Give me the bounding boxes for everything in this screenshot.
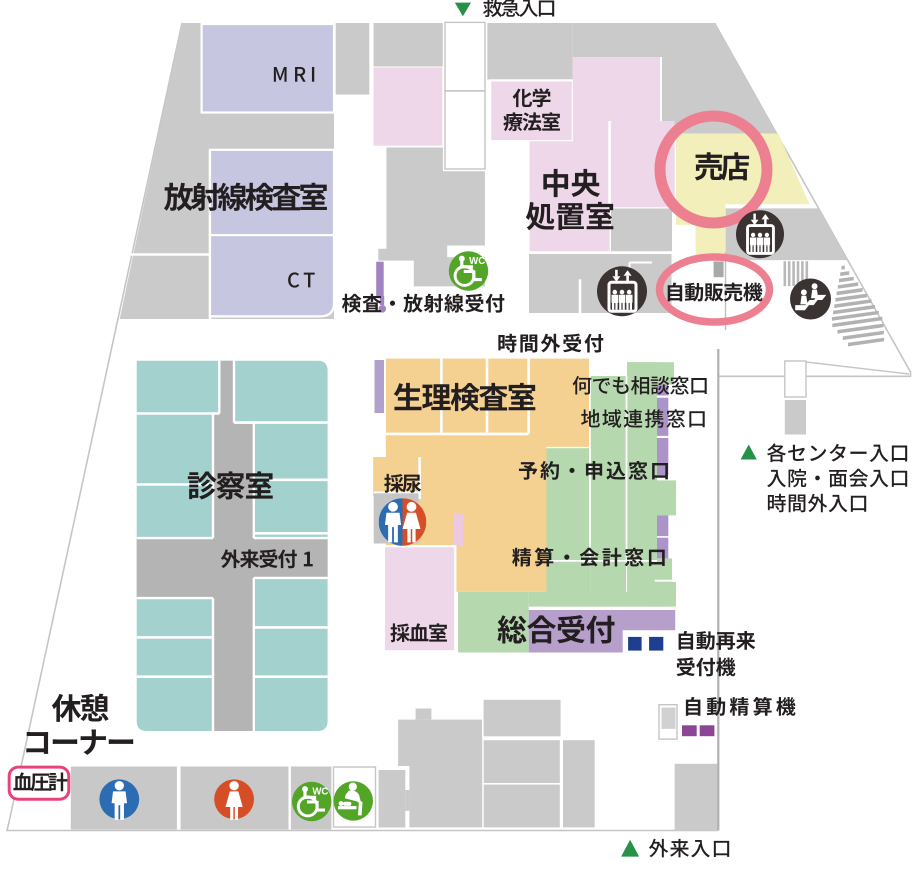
svg-text:WC: WC xyxy=(469,256,485,267)
svg-text:WC: WC xyxy=(312,787,328,798)
